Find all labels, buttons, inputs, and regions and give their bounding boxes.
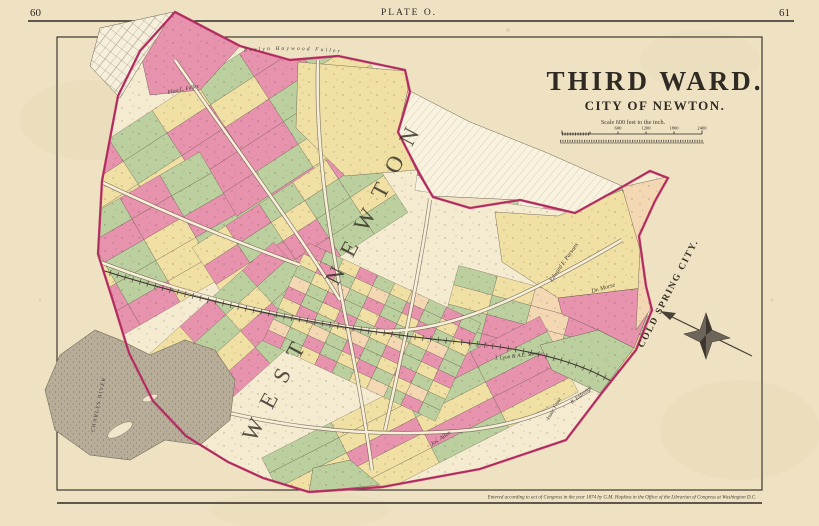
- map-title: THIRD WARD.: [546, 66, 763, 96]
- map-plate: 60 PLATE O. 61: [0, 0, 819, 526]
- scale-tick-label: 600: [615, 126, 623, 131]
- map-subtitle: CITY OF NEWTON.: [585, 98, 726, 113]
- atlas-page: 60 PLATE O. 61: [0, 0, 819, 526]
- page-number-right: 61: [779, 7, 790, 19]
- plate-label: PLATE O.: [381, 8, 437, 18]
- scale-tick-label: 1800: [669, 126, 679, 131]
- copyright-line: Entered according to act of Congress in …: [487, 496, 757, 501]
- scale-text: Scale 600 feet to the inch.: [601, 119, 666, 126]
- page-number-left: 60: [30, 7, 42, 19]
- scale-tick-label: 1200: [641, 126, 651, 131]
- scale-tick-label: 2400: [697, 126, 707, 131]
